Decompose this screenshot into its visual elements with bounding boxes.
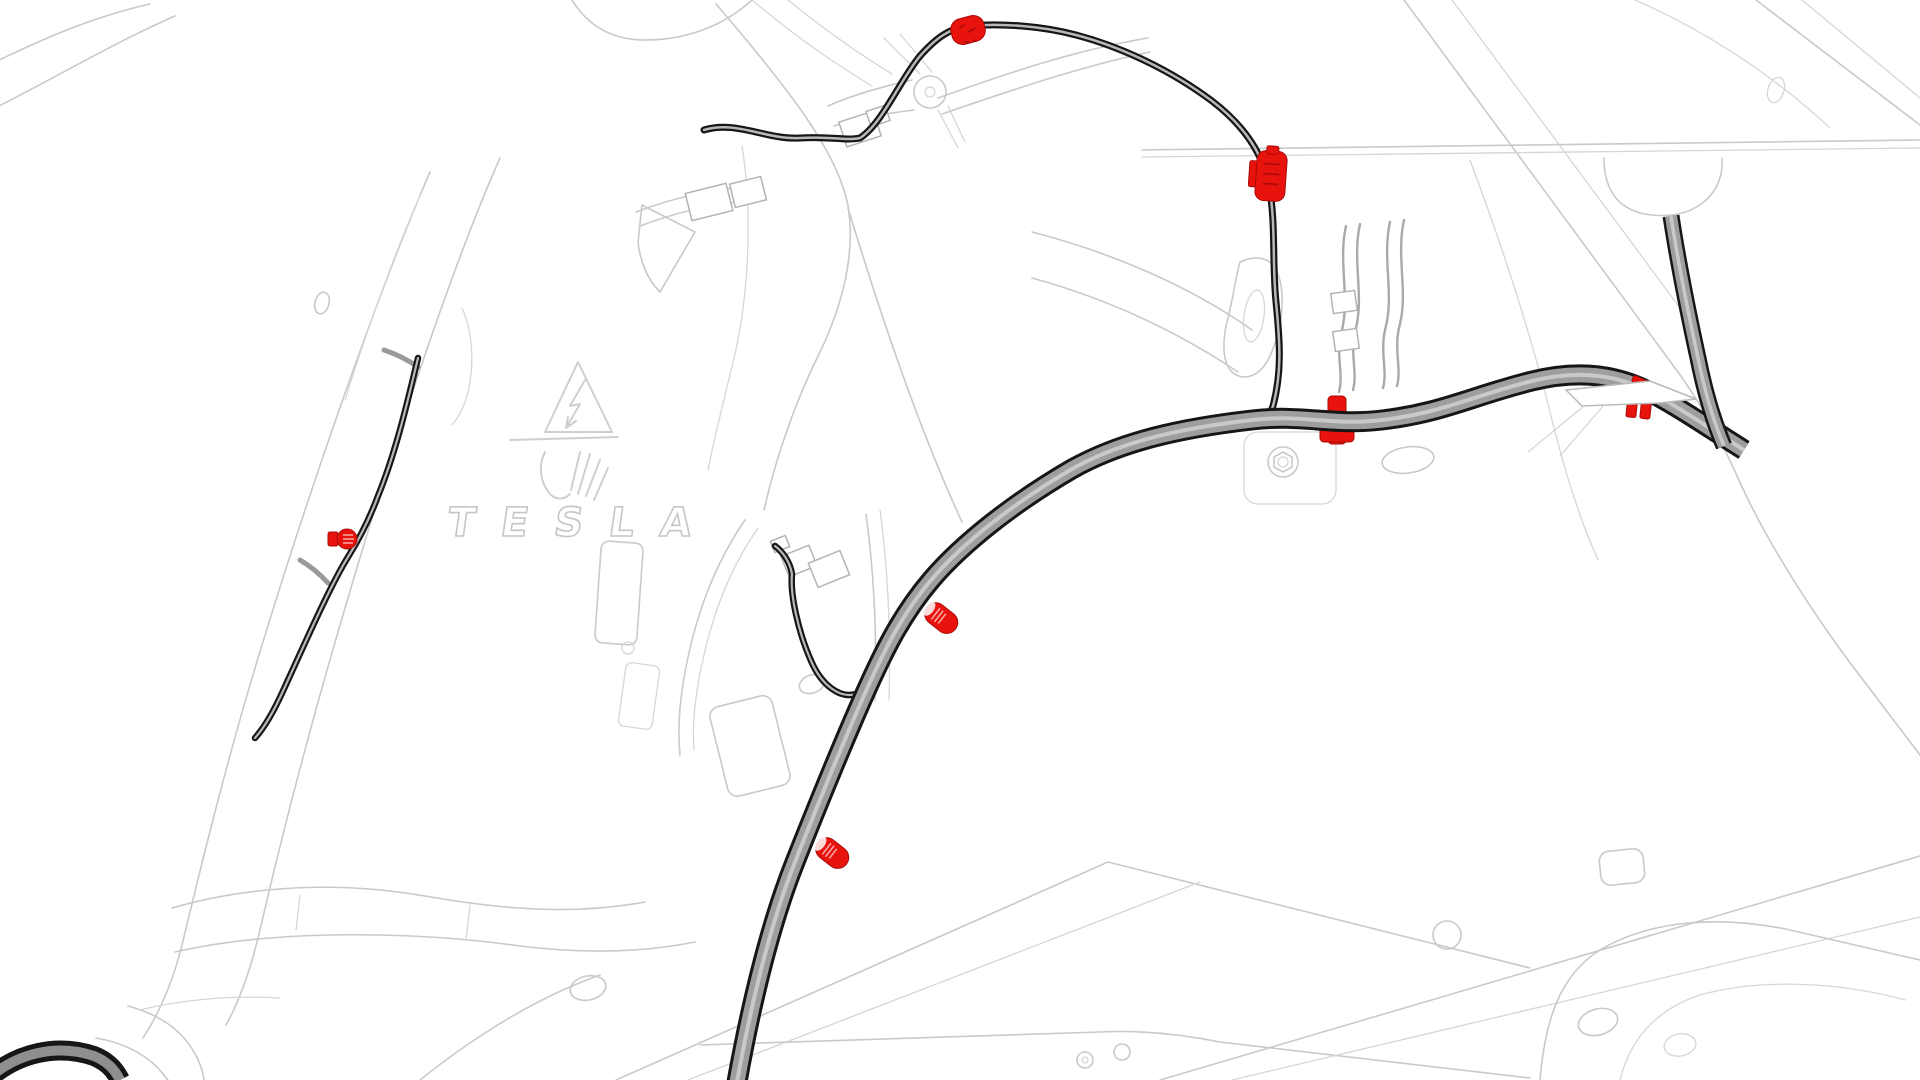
main-harness <box>737 375 1744 1080</box>
clip-left-cable <box>328 529 357 549</box>
high-voltage-warning-triangle-icon <box>510 362 618 440</box>
hv-glove-hand-icon <box>541 452 608 500</box>
signal-cable-left <box>255 358 418 738</box>
clip-top-cable <box>948 13 988 47</box>
rocker-panel-lines <box>140 887 695 1010</box>
diagram-canvas: TESLA <box>0 0 1920 1080</box>
service-diagram-page: TESLA <box>0 0 1920 1080</box>
top-left-panel-lines <box>0 4 175 108</box>
upper-quarter-panel <box>452 0 850 510</box>
pin-harness-lower <box>810 832 853 872</box>
signal-cable-upper <box>704 25 1279 416</box>
tesla-logo-text: TESLA <box>445 500 721 546</box>
top-center-linkage <box>636 0 1150 292</box>
clip-upper-right-cable <box>1247 145 1288 202</box>
harness-loop-bottom-left <box>0 1051 120 1080</box>
floor-panel-lines <box>420 862 1530 1080</box>
rear-bracket-lines <box>1160 848 1920 1080</box>
harness-bracket-overlay <box>1528 381 1696 456</box>
left-pillar-strut <box>96 158 500 1080</box>
